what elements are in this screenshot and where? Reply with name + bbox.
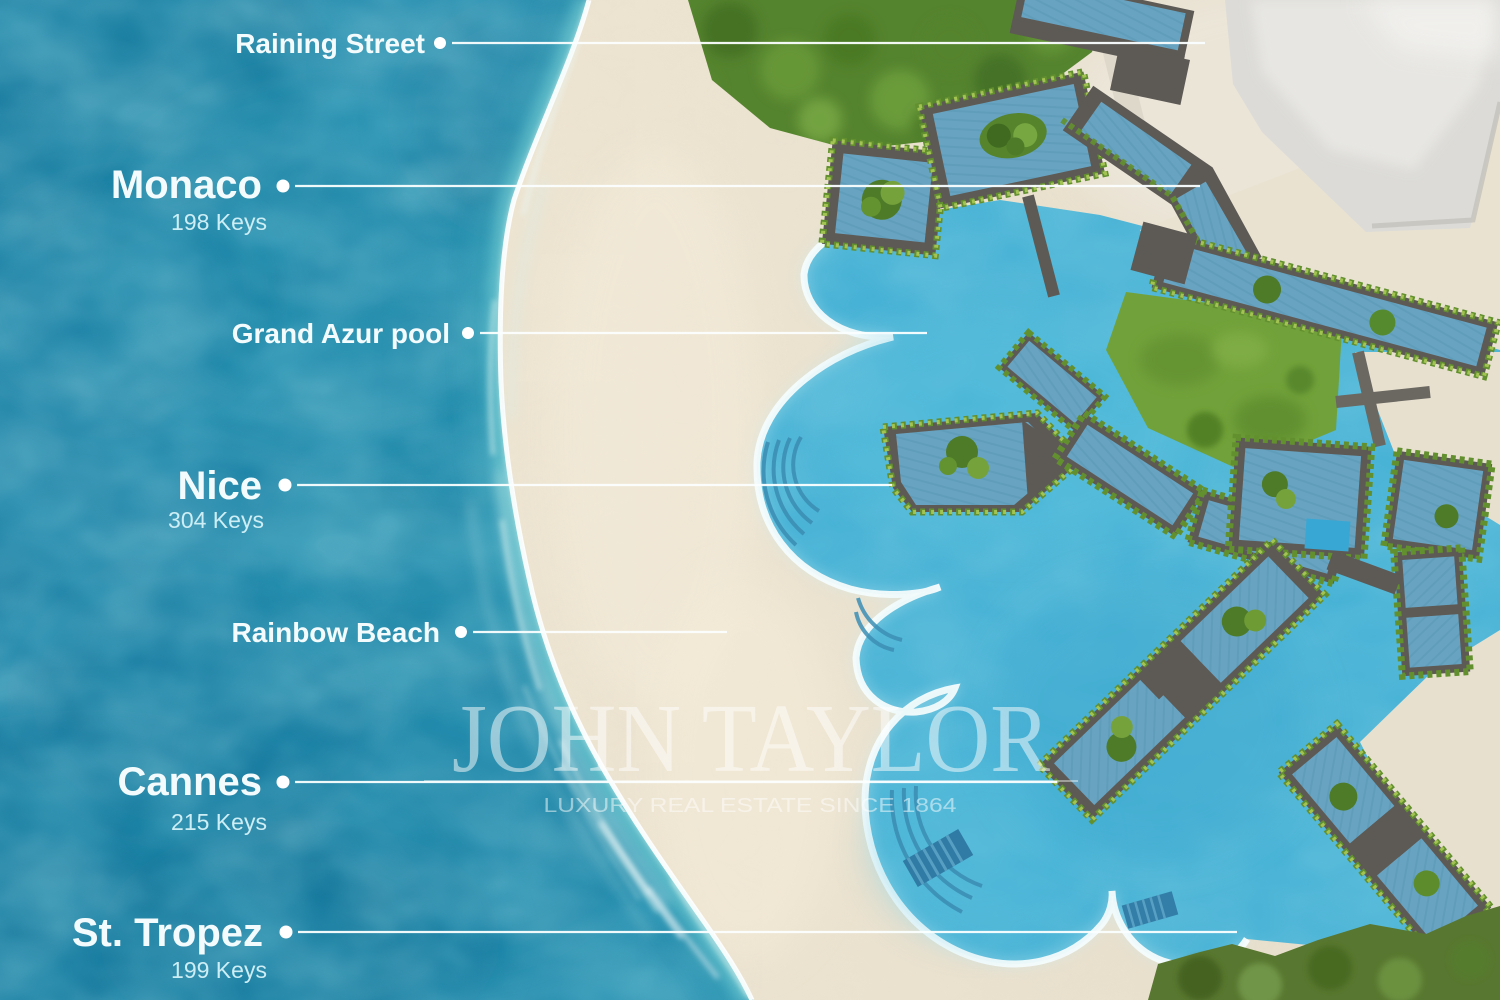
svg-text:Cannes: Cannes bbox=[118, 760, 263, 804]
svg-text:JOHN TAYLOR: JOHN TAYLOR bbox=[452, 685, 1050, 792]
svg-text:Monaco: Monaco bbox=[111, 163, 262, 207]
svg-text:198 Keys: 198 Keys bbox=[171, 209, 267, 235]
svg-text:199 Keys: 199 Keys bbox=[171, 957, 267, 983]
svg-text:Rainbow Beach: Rainbow Beach bbox=[232, 617, 440, 648]
svg-text:LUXURY REAL ESTATE SINCE 1864: LUXURY REAL ESTATE SINCE 1864 bbox=[544, 795, 957, 817]
svg-text:Grand Azur pool: Grand Azur pool bbox=[232, 318, 450, 349]
svg-text:Raining Street: Raining Street bbox=[235, 28, 425, 59]
svg-text:St. Tropez: St. Tropez bbox=[72, 911, 263, 955]
svg-text:Nice: Nice bbox=[178, 464, 263, 508]
svg-text:304 Keys: 304 Keys bbox=[168, 507, 264, 533]
svg-text:215 Keys: 215 Keys bbox=[171, 809, 267, 835]
